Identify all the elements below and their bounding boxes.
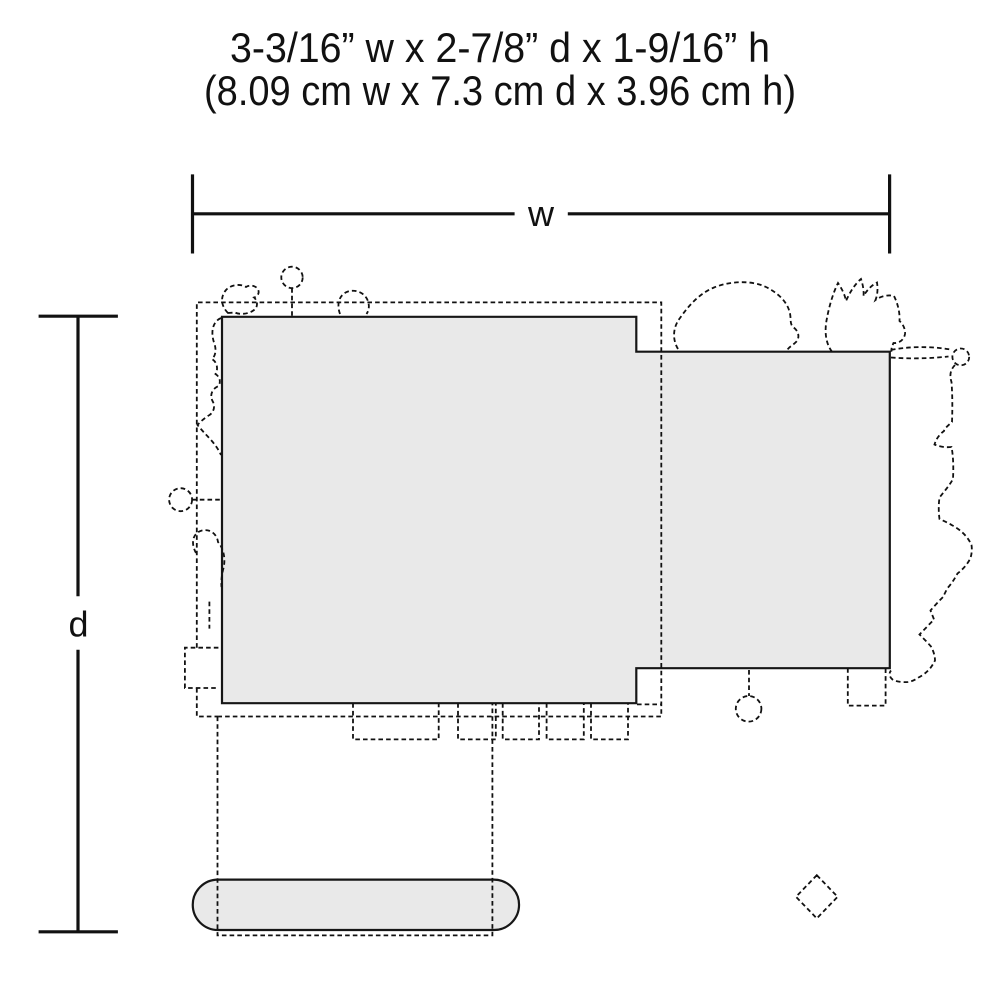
svg-text:w: w [527, 193, 555, 234]
svg-text:d: d [68, 603, 88, 644]
svg-text:3-3/16” w x 2-7/8” d x 1-9/16”: 3-3/16” w x 2-7/8” d x 1-9/16” h [230, 24, 770, 71]
svg-text:(8.09 cm w x 7.3 cm d x 3.96 c: (8.09 cm w x 7.3 cm d x 3.96 cm h) [204, 67, 796, 114]
